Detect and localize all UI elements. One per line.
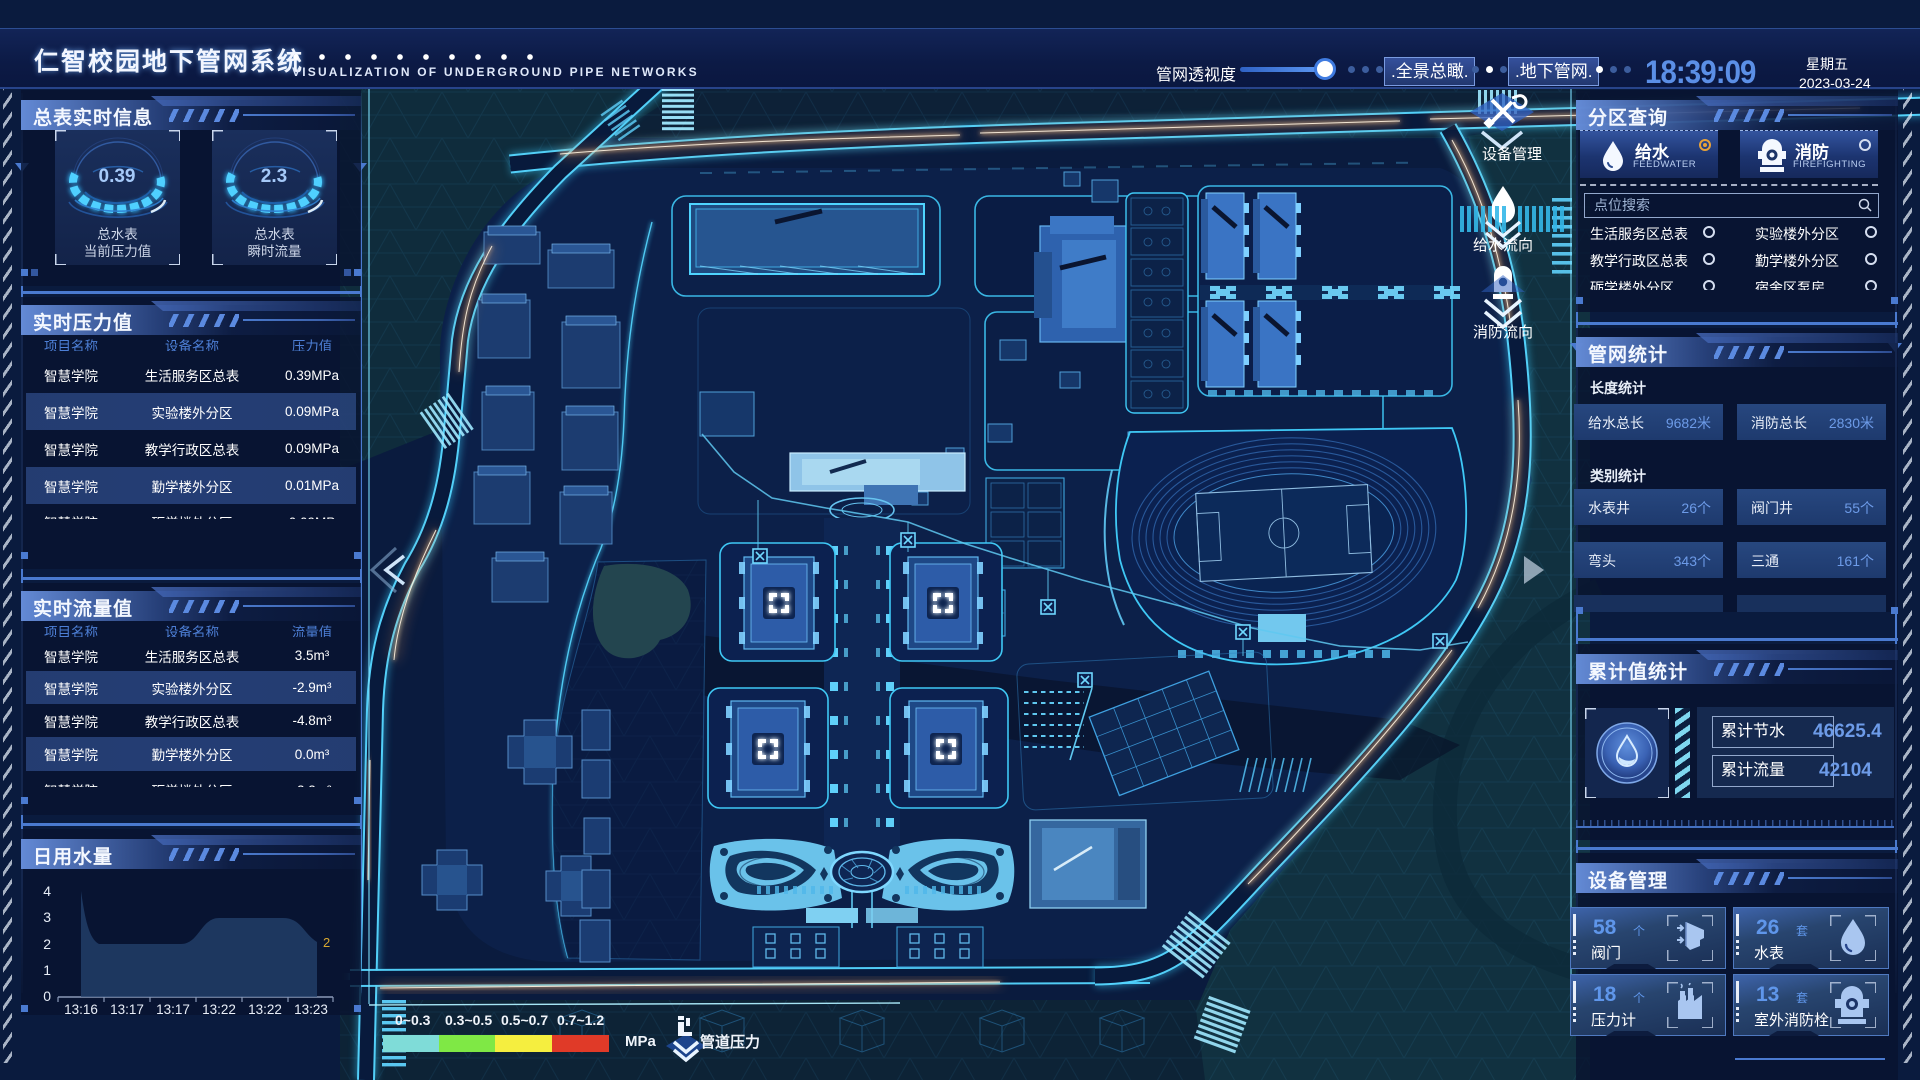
- svg-text:设备管理: 设备管理: [1482, 146, 1542, 163]
- svg-text:2: 2: [43, 936, 51, 952]
- svg-text:消防流向: 消防流向: [1473, 324, 1533, 341]
- svg-text:4: 4: [43, 883, 51, 899]
- svg-text:13:17: 13:17: [110, 1002, 144, 1015]
- svg-text:给水流向: 给水流向: [1473, 237, 1533, 254]
- svg-text:2: 2: [323, 935, 330, 950]
- svg-text:13:16: 13:16: [64, 1002, 98, 1015]
- svg-text:13:17: 13:17: [156, 1002, 190, 1015]
- svg-text:0: 0: [43, 988, 51, 1004]
- svg-text:13:22: 13:22: [202, 1002, 236, 1015]
- svg-text:3: 3: [43, 909, 51, 925]
- svg-text:1: 1: [43, 962, 51, 978]
- svg-text:13:22: 13:22: [248, 1002, 282, 1015]
- svg-text:13:23: 13:23: [294, 1002, 328, 1015]
